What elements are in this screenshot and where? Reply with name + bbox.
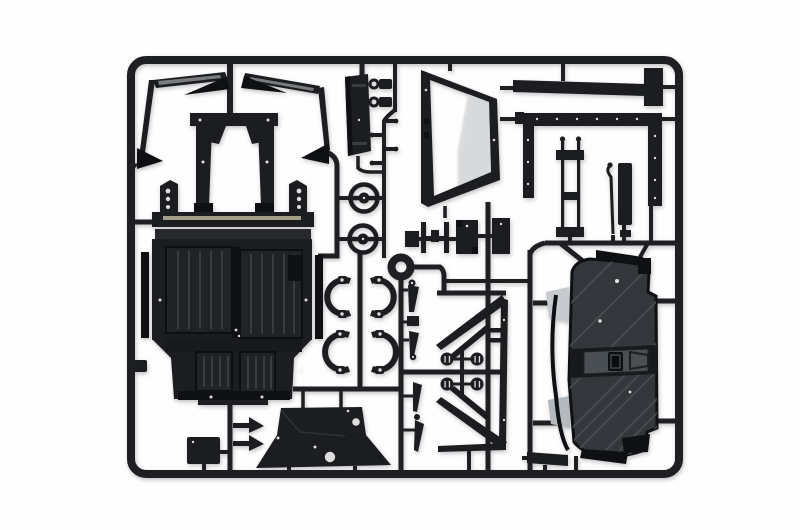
pulley-wheel-lower <box>349 226 377 253</box>
sprue-photo: Black injection-molded plastic model-kit… <box>0 0 800 530</box>
rear-body-panel <box>478 236 736 508</box>
mount-plate-left <box>160 180 178 213</box>
sprue-tree <box>131 60 736 508</box>
mount-plate-right <box>289 180 307 213</box>
sill-bar <box>527 452 568 466</box>
roof-bar <box>513 68 663 106</box>
lever-parts-column <box>407 280 424 453</box>
shift-lever <box>607 162 613 234</box>
small-square-part <box>405 231 419 247</box>
block-part-plain <box>492 218 510 254</box>
sprue-ring-junction <box>392 258 411 277</box>
window-frame <box>421 70 500 207</box>
block-part-stepped <box>456 220 478 254</box>
arrow-clip-2 <box>233 435 264 451</box>
pedal-blades <box>421 222 449 253</box>
floor-pan <box>141 212 323 405</box>
chassis-diagonals-lower <box>436 386 507 452</box>
mirror-clips <box>370 79 392 107</box>
pulley-wheel-upper <box>350 185 378 212</box>
firewall-cowl <box>256 407 391 468</box>
chassis-diagonals-upper <box>436 295 507 359</box>
bulkhead-frame <box>190 113 278 213</box>
radius-rod-assembly <box>556 136 584 237</box>
door-frame <box>515 112 662 206</box>
tailgate-panel <box>345 74 371 156</box>
arrow-clip-1 <box>233 417 264 433</box>
small-plate <box>187 437 220 464</box>
